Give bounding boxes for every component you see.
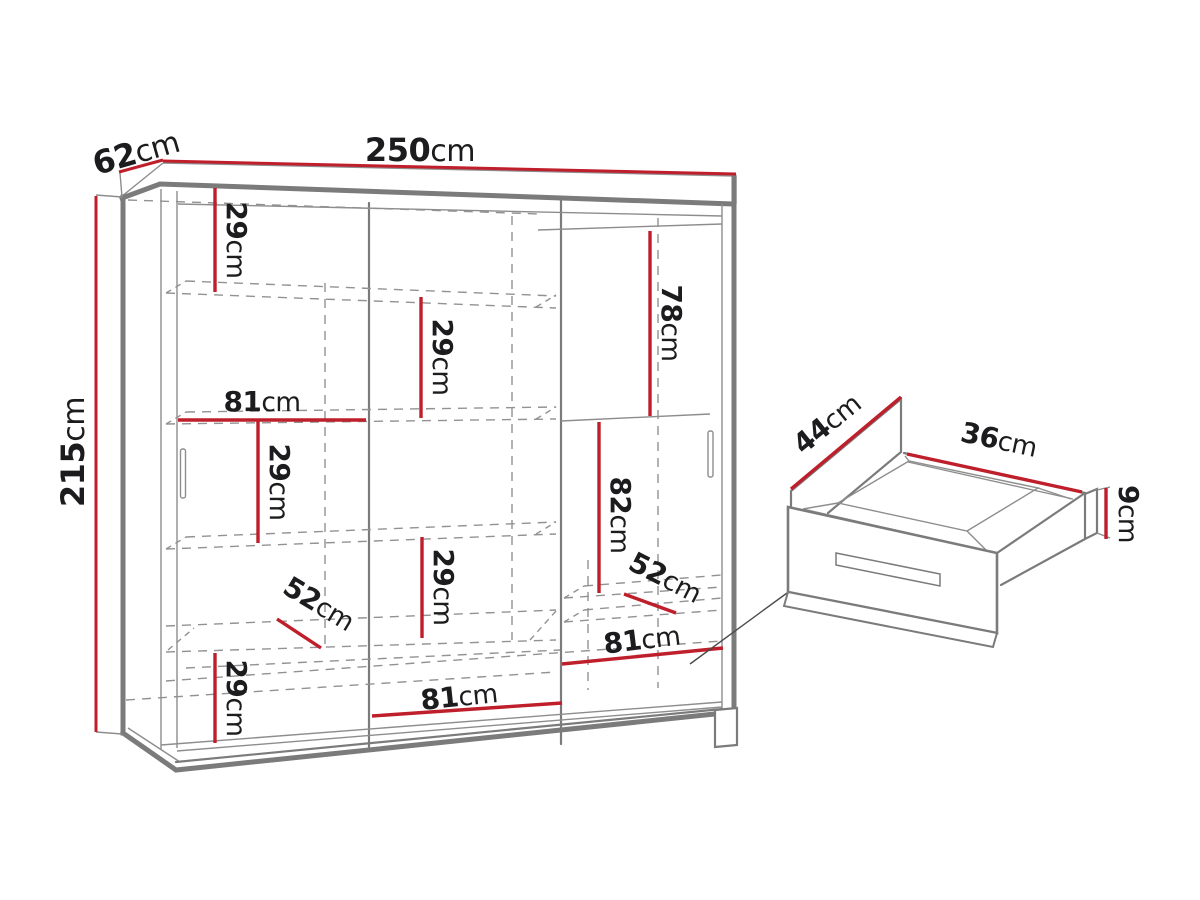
dim-label-29-left-middle: 29cm <box>263 443 296 520</box>
right-door-handle <box>708 431 713 477</box>
shelf-row4-back <box>166 610 556 626</box>
drawer-callout-line <box>690 593 787 664</box>
dim-label-82-right: 82cm <box>604 476 637 553</box>
drawer-right-wall-bottom <box>1001 539 1085 585</box>
dim-label-29-top-left: 29cm <box>220 201 253 278</box>
drawer-back-wall-inner <box>908 462 1073 499</box>
right-shelf-mid-solid <box>561 414 710 421</box>
shelf-tick <box>166 537 186 549</box>
shelf-row1-front <box>166 293 556 308</box>
dim-label-29-middle-lower: 29cm <box>427 548 460 625</box>
drawer-height-tick-top <box>1097 487 1110 490</box>
drawer-inner-corner <box>905 456 909 461</box>
dim-label-81-left: 81cm <box>223 385 300 418</box>
dim-label-wardrobe-depth: 62cm <box>88 122 183 183</box>
dim-label-drawer-width: 36cm <box>958 416 1040 464</box>
dim-label-wardrobe-width: 250cm <box>365 131 475 169</box>
dim-label-29-middle-upper: 29cm <box>426 318 459 395</box>
shelf-tick <box>536 407 556 419</box>
base-top-line <box>176 709 722 762</box>
diagram-svg: 62cm 250cm 215cm 29cm 29cm 78cm 81cm 29c… <box>0 0 1200 900</box>
dim-label-81-middle: 81cm <box>419 676 499 717</box>
right-foot <box>715 708 737 747</box>
shelf-row3-front <box>166 534 556 549</box>
wardrobe-dimension-diagram: 62cm 250cm 215cm 29cm 29cm 78cm 81cm 29c… <box>0 0 1200 900</box>
drawer-height-tick-bottom <box>1097 533 1110 538</box>
dim-label-drawer-depth: 44cm <box>787 387 868 461</box>
shelf-tick <box>166 281 186 293</box>
shelf-tick <box>536 295 556 307</box>
shelf-row3-back <box>186 522 556 537</box>
left-door-handle <box>181 449 186 498</box>
shelf-tick <box>166 412 186 424</box>
drawer-detail <box>690 397 1110 664</box>
dim-label-78-right: 78cm <box>655 284 688 361</box>
shelf-tick <box>536 522 556 534</box>
drawer-right-end-cap <box>1085 489 1097 539</box>
dim-label-29-bottom-left: 29cm <box>220 659 253 736</box>
drawer-floor <box>838 461 1038 531</box>
dim-line-drawer-width-36 <box>907 454 1082 492</box>
dim-line-52-left <box>277 619 321 648</box>
right-shelf-top-solid <box>538 224 722 230</box>
shelf-row4-front <box>166 640 556 652</box>
dim-label-drawer-height: 9cm <box>1112 485 1145 543</box>
dim-label-wardrobe-height: 215cm <box>54 397 92 507</box>
height-tick-top <box>96 195 122 197</box>
height-tick-bottom <box>96 732 122 734</box>
ceiling-front-line <box>178 204 722 216</box>
drawer-right-wall-top <box>997 493 1085 553</box>
shelf-row1-back <box>186 281 556 296</box>
shelf-tick <box>168 628 194 650</box>
shelf-tick <box>530 611 556 640</box>
